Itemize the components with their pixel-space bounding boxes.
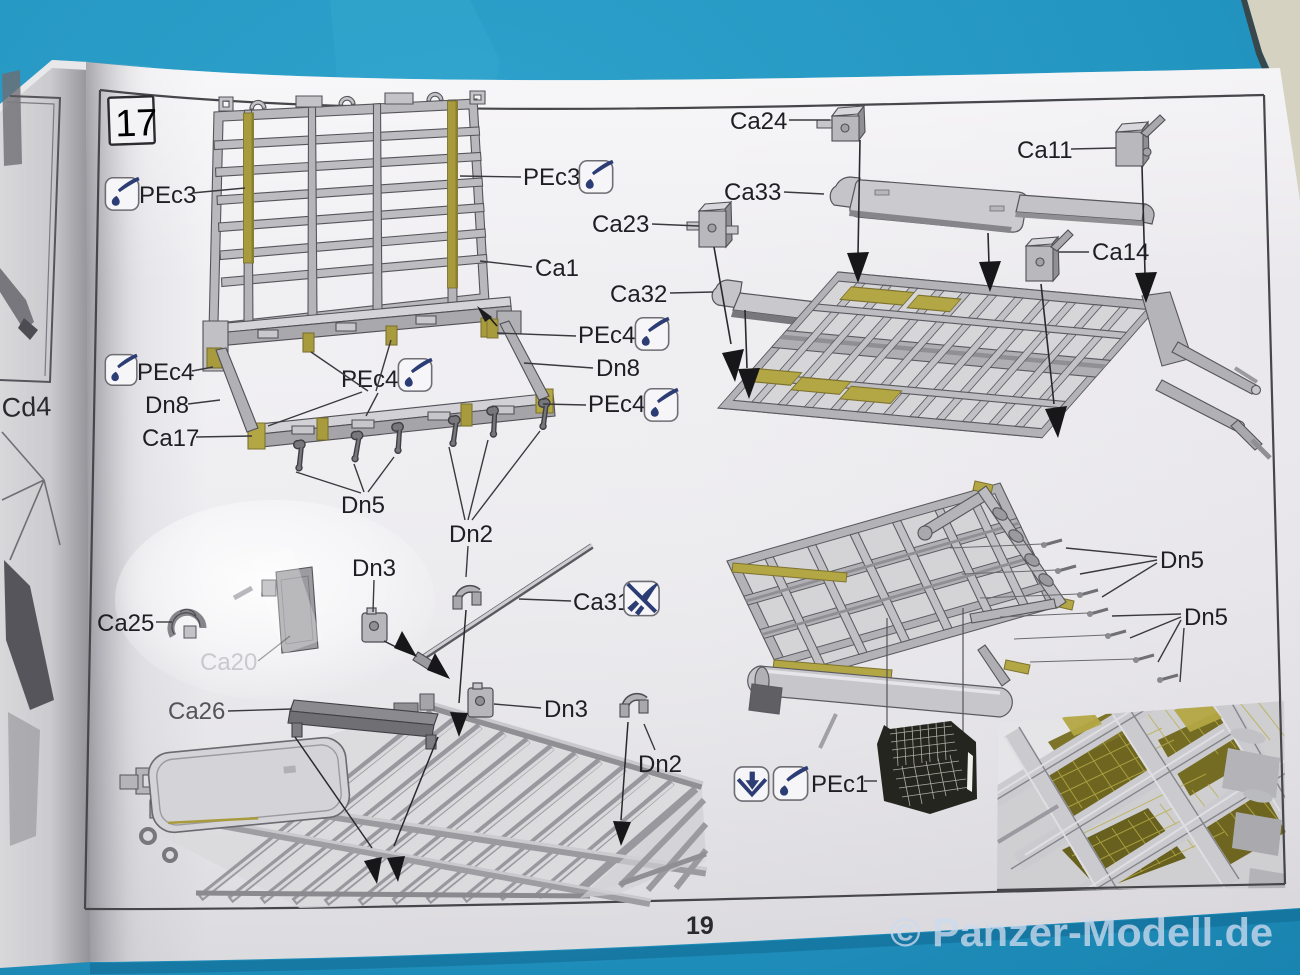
svg-text:Ca25: Ca25 bbox=[97, 610, 154, 637]
svg-text:PEc1: PEc1 bbox=[811, 771, 868, 798]
svg-text:Dn8: Dn8 bbox=[145, 392, 189, 419]
svg-text:Ca24: Ca24 bbox=[730, 108, 787, 135]
svg-text:PEc4: PEc4 bbox=[341, 366, 398, 393]
svg-text:Cd4: Cd4 bbox=[1, 391, 52, 423]
svg-text:17: 17 bbox=[114, 102, 158, 145]
svg-text:Ca33: Ca33 bbox=[724, 179, 781, 206]
svg-text:Dn8: Dn8 bbox=[596, 355, 640, 382]
svg-text:Dn3: Dn3 bbox=[544, 696, 588, 723]
svg-text:Dn5: Dn5 bbox=[1160, 547, 1204, 574]
svg-text:PEc3: PEc3 bbox=[523, 164, 580, 191]
svg-text:Ca17: Ca17 bbox=[142, 425, 199, 452]
svg-text:Ca1: Ca1 bbox=[535, 255, 579, 282]
svg-text:Dn2: Dn2 bbox=[449, 521, 493, 548]
svg-text:Ca23: Ca23 bbox=[592, 211, 649, 238]
svg-text:PEc4: PEc4 bbox=[588, 391, 645, 418]
svg-text:© Panzer-Modell.de: © Panzer-Modell.de bbox=[890, 911, 1273, 955]
svg-text:Dn5: Dn5 bbox=[1184, 604, 1228, 631]
svg-text:Dn2: Dn2 bbox=[638, 751, 682, 778]
svg-text:PEc4: PEc4 bbox=[578, 322, 635, 349]
svg-text:Ca32: Ca32 bbox=[610, 281, 667, 308]
svg-text:Ca20: Ca20 bbox=[200, 649, 257, 676]
svg-text:Dn5: Dn5 bbox=[341, 492, 385, 519]
svg-text:Ca14: Ca14 bbox=[1092, 239, 1149, 266]
svg-text:Ca11: Ca11 bbox=[1017, 137, 1073, 164]
svg-text:Ca26: Ca26 bbox=[168, 698, 225, 725]
svg-text:PEc4: PEc4 bbox=[137, 359, 194, 386]
svg-text:Ca31: Ca31 bbox=[573, 589, 630, 616]
svg-text:PEc3: PEc3 bbox=[139, 182, 196, 209]
svg-text:19: 19 bbox=[686, 912, 714, 940]
svg-text:Dn3: Dn3 bbox=[352, 555, 396, 582]
